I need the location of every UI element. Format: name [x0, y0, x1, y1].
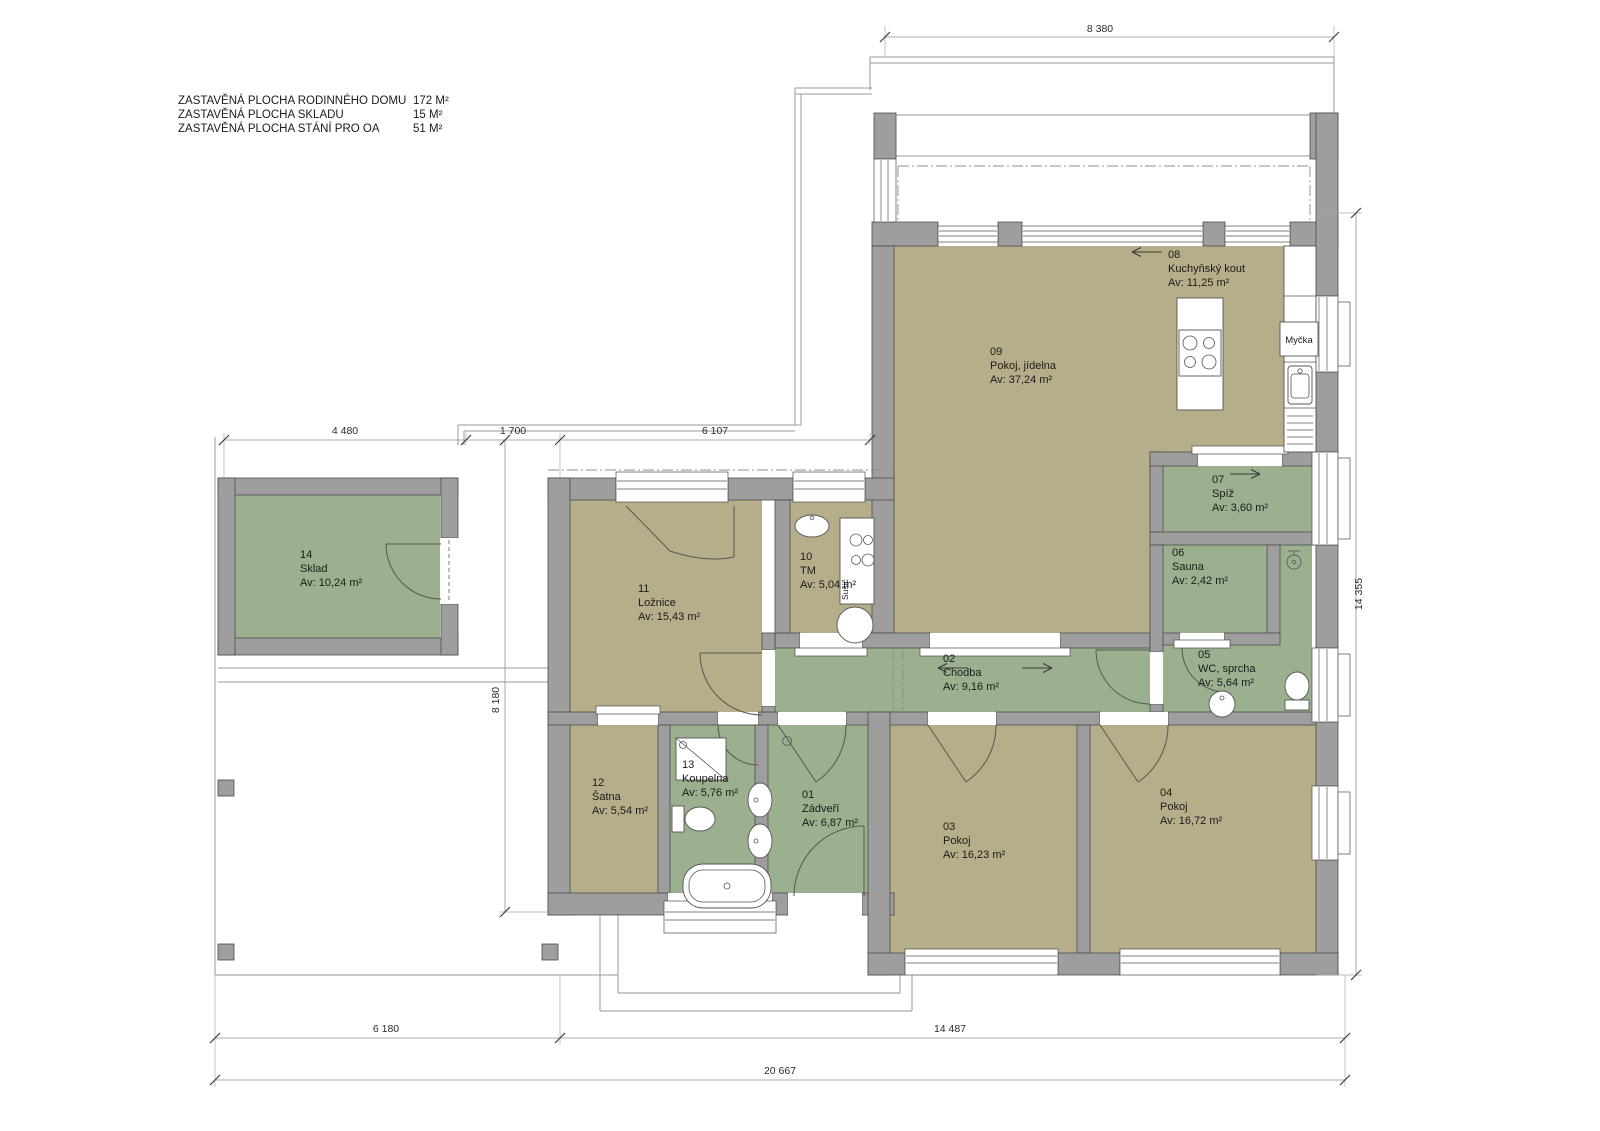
dryer-label: Sušič	[840, 578, 850, 600]
room-name: Pokoj, jídelna	[990, 360, 1057, 372]
room-02-floor	[775, 648, 1150, 712]
washbasin	[748, 824, 772, 858]
kitchen-sink	[1288, 366, 1312, 404]
room-number: 09	[990, 346, 1002, 358]
kitchen-counter	[1280, 246, 1318, 452]
legend-value: 172 M²	[413, 95, 449, 107]
dim-top: 8 380	[1087, 23, 1113, 35]
sliding-door-track	[1192, 446, 1288, 454]
legend-value: 15 M²	[413, 109, 443, 121]
room-area: Av: 5,76 m²	[682, 787, 738, 799]
legend-label: ZASTAVĚNÁ PLOCHA STÁNÍ PRO OA	[178, 122, 380, 135]
room-number: 07	[1212, 474, 1224, 486]
room-name: WC, sprcha	[1198, 663, 1256, 675]
room-area: Av: 6,87 m²	[802, 817, 858, 829]
dim-bottom-left: 6 180	[373, 1023, 399, 1035]
floor-plan-page: 8 380 4 480 1 700 6 107 8 180 14 355 6 1…	[0, 0, 1600, 1131]
sliding-door-track	[795, 648, 867, 656]
legend-label: ZASTAVĚNÁ PLOCHA SKLADU	[178, 108, 344, 121]
room-area: Av: 11,25 m²	[1168, 277, 1230, 289]
dishwasher-label: Myčka	[1285, 335, 1313, 346]
dim-bottom-right: 14 487	[934, 1023, 966, 1035]
room-area: Av: 10,24 m²	[300, 577, 362, 589]
room-number: 11	[638, 583, 649, 595]
cooktop-icon	[1179, 330, 1221, 376]
dim-mid-right: 6 107	[702, 425, 728, 437]
room-number: 12	[592, 777, 604, 789]
room-area: Av: 2,42 m²	[1172, 575, 1228, 587]
toilet	[672, 806, 715, 832]
room-07-floor	[1163, 466, 1312, 532]
room-area: Av: 15,43 m²	[638, 611, 700, 623]
room-number: 01	[802, 789, 814, 801]
room-04-floor	[1090, 725, 1316, 953]
room-area: Av: 16,23 m²	[943, 849, 1005, 861]
canopy-post	[218, 944, 234, 960]
dim-mid-left: 4 480	[332, 425, 358, 437]
dim-bottom-total: 20 667	[764, 1065, 796, 1077]
legend-value: 51 M²	[413, 123, 443, 135]
legend-label: ZASTAVĚNÁ PLOCHA RODINNÉHO DOMU	[178, 94, 406, 107]
room-area: Av: 16,72 m²	[1160, 815, 1222, 827]
room-number: 03	[943, 821, 955, 833]
sliding-door-track	[1174, 640, 1230, 648]
room-name: Šatna	[592, 790, 622, 803]
kitchen-island	[1177, 298, 1223, 410]
room-area: Av: 5,54 m²	[592, 805, 648, 817]
room-name: Chodba	[943, 667, 982, 679]
room-name: Spíž	[1212, 488, 1234, 500]
room-name: Ložnice	[638, 597, 676, 609]
room-number: 08	[1168, 249, 1180, 261]
room-area: Av: 37,24 m²	[990, 374, 1052, 386]
room-name: Sklad	[300, 563, 328, 575]
room-name: Zádveří	[802, 803, 839, 815]
canopy-post	[218, 780, 234, 796]
dim-mid-center: 1 700	[500, 425, 526, 437]
dim-right-vertical: 14 355	[1353, 578, 1365, 610]
washbasin	[748, 783, 772, 817]
room-number: 13	[682, 759, 694, 771]
room-name: Sauna	[1172, 561, 1205, 573]
toilet	[1285, 672, 1309, 710]
washbasin	[1209, 691, 1235, 717]
room-name: Pokoj	[1160, 801, 1188, 813]
room-number: 02	[943, 653, 955, 665]
bathtub	[683, 864, 771, 908]
room-name: Kuchyňský kout	[1168, 263, 1245, 275]
room-area: Av: 3,60 m²	[1212, 502, 1268, 514]
room-number: 10	[800, 551, 812, 563]
utility-sink	[795, 515, 829, 537]
room-number: 14	[300, 549, 312, 561]
room-name: TM	[800, 565, 816, 577]
room-14-floor	[235, 495, 440, 638]
room-area: Av: 5,64 m²	[1198, 677, 1254, 689]
dim-left-vertical: 8 180	[490, 687, 502, 713]
room-area: Av: 9,16 m²	[943, 681, 999, 693]
canopy-post	[542, 944, 558, 960]
room-number: 05	[1198, 649, 1210, 661]
room-name: Koupelna	[682, 773, 729, 785]
room-number: 06	[1172, 547, 1184, 559]
room-03-floor	[890, 725, 1077, 953]
room-name: Pokoj	[943, 835, 971, 847]
sliding-door-track	[596, 706, 660, 714]
legend: ZASTAVĚNÁ PLOCHA RODINNÉHO DOMU 172 M² Z…	[178, 94, 449, 135]
room-number: 04	[1160, 787, 1172, 799]
boiler	[837, 607, 873, 643]
floor-plan-canvas: 8 380 4 480 1 700 6 107 8 180 14 355 6 1…	[0, 0, 1600, 1131]
